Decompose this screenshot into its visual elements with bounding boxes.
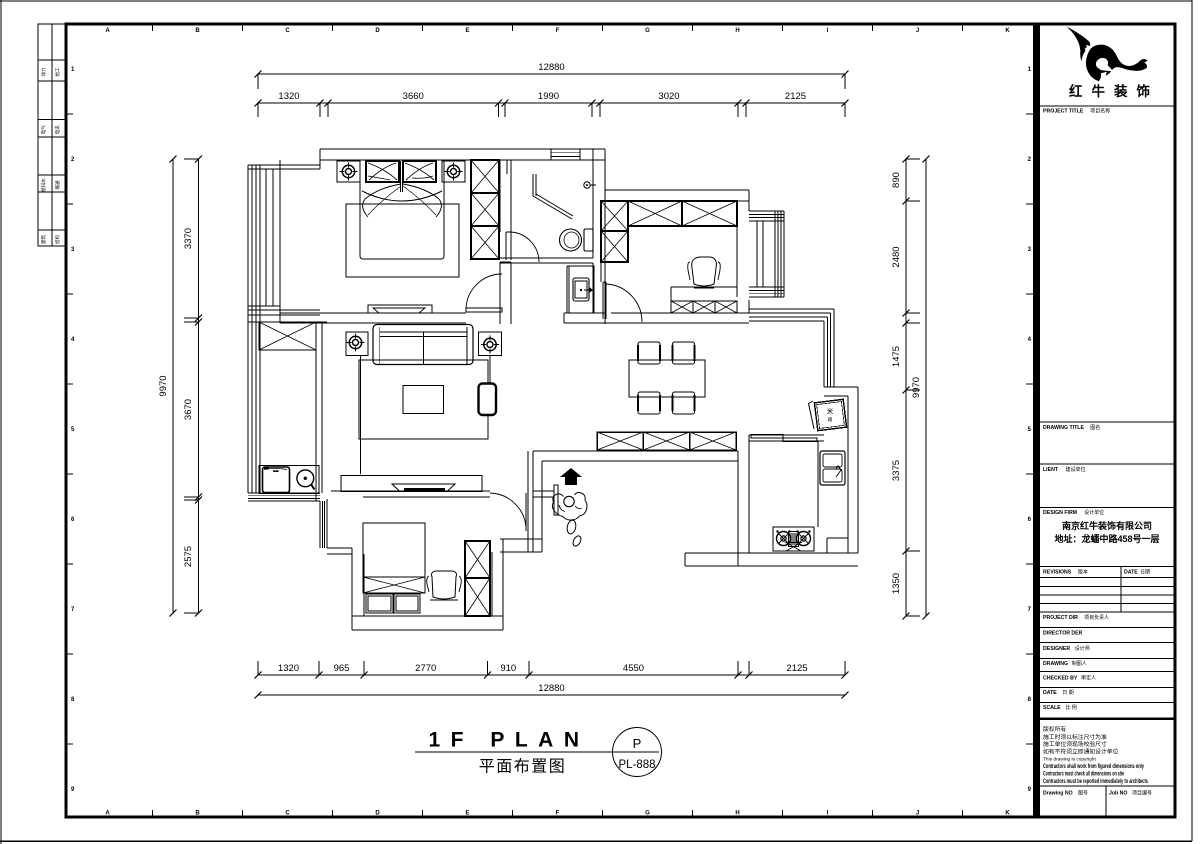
svg-text:4550: 4550: [623, 663, 644, 674]
svg-text:DIRECTOR DER: DIRECTOR DER: [1043, 631, 1083, 637]
svg-text:项目编号: 项目编号: [1132, 790, 1152, 797]
svg-text:日期: 日期: [1140, 570, 1150, 576]
svg-text:3370: 3370: [183, 228, 194, 249]
svg-text:E: E: [465, 28, 469, 34]
svg-text:Contractors must check all dim: Contractors must check all dimensions on…: [1043, 771, 1124, 777]
svg-text:平面布置图: 平面布置图: [479, 758, 567, 776]
svg-text:I: I: [827, 28, 829, 34]
svg-text:E: E: [465, 811, 469, 817]
svg-text:1320: 1320: [278, 91, 299, 102]
svg-text:F: F: [556, 811, 560, 817]
svg-text:暖通: 暖通: [54, 180, 61, 189]
svg-text:This drawing is copyright: This drawing is copyright: [1043, 756, 1096, 762]
svg-text:Job NO: Job NO: [1109, 791, 1127, 797]
svg-text:PROJECT DIR: PROJECT DIR: [1043, 615, 1078, 621]
svg-text:1: 1: [1028, 67, 1032, 73]
svg-text:动力: 动力: [40, 67, 47, 76]
svg-text:9: 9: [71, 787, 75, 793]
svg-text:A: A: [105, 811, 110, 817]
svg-text:8: 8: [71, 697, 75, 703]
svg-text:Contractors shall work from fi: Contractors shall work from figured dime…: [1043, 764, 1144, 770]
svg-text:H: H: [735, 28, 739, 34]
svg-text:6: 6: [71, 517, 75, 523]
svg-text:965: 965: [334, 663, 350, 674]
svg-text:施工时须以标注尺寸为准: 施工时须以标注尺寸为准: [1043, 733, 1107, 741]
svg-text:7: 7: [71, 607, 75, 613]
svg-text:6: 6: [1028, 517, 1032, 523]
svg-text:9970: 9970: [158, 375, 169, 396]
svg-text:米: 米: [827, 407, 834, 416]
svg-text:2: 2: [1028, 157, 1032, 163]
svg-text:3020: 3020: [658, 91, 679, 102]
svg-text:A: A: [105, 28, 110, 34]
svg-text:F: F: [556, 28, 560, 34]
svg-text:DESIGNER: DESIGNER: [1043, 646, 1070, 652]
svg-text:2125: 2125: [785, 91, 806, 102]
svg-text:DRAWING TITLE: DRAWING TITLE: [1043, 425, 1084, 431]
svg-text:审定人: 审定人: [1081, 675, 1096, 682]
svg-text:电气: 电气: [40, 125, 46, 134]
svg-text:版本: 版本: [1078, 569, 1088, 576]
svg-text:1320: 1320: [278, 663, 299, 674]
svg-text:2770: 2770: [415, 663, 436, 674]
svg-text:7: 7: [1028, 607, 1032, 613]
svg-text:结构: 结构: [54, 235, 61, 244]
svg-text:制图人: 制图人: [1072, 660, 1087, 667]
svg-text:B: B: [195, 811, 200, 817]
svg-text:G: G: [645, 811, 650, 817]
svg-text:Drawing NO: Drawing NO: [1043, 791, 1073, 797]
svg-text:1350: 1350: [891, 573, 902, 594]
svg-text:3375: 3375: [891, 460, 902, 481]
svg-text:项目负责人: 项目负责人: [1084, 614, 1109, 621]
svg-text:C: C: [285, 811, 290, 817]
svg-text:4: 4: [71, 337, 75, 343]
svg-text:K: K: [1005, 28, 1010, 34]
svg-text:给排水: 给排水: [40, 178, 47, 192]
svg-text:D: D: [375, 811, 380, 817]
svg-text:J: J: [916, 811, 919, 817]
svg-text:图号: 图号: [1078, 791, 1088, 797]
svg-text:建设单位: 建设单位: [1066, 466, 1086, 473]
svg-text:910: 910: [500, 663, 516, 674]
svg-text:施工单位须现场校验尺寸: 施工单位须现场校验尺寸: [1043, 740, 1107, 748]
svg-text:D: D: [375, 28, 380, 34]
svg-text:版权所有: 版权所有: [1043, 725, 1066, 733]
svg-text:C: C: [285, 28, 290, 34]
svg-text:DATE: DATE: [1043, 690, 1057, 696]
svg-text:南京红牛装饰有限公司: 南京红牛装饰有限公司: [1062, 520, 1152, 531]
svg-text:J: J: [916, 28, 919, 34]
svg-text:电讯: 电讯: [54, 125, 61, 134]
svg-text:12880: 12880: [538, 683, 564, 694]
svg-text:2125: 2125: [786, 663, 807, 674]
svg-text:1990: 1990: [538, 91, 559, 102]
svg-text:B: B: [195, 28, 200, 34]
svg-text:P: P: [633, 736, 642, 751]
svg-text:3: 3: [71, 247, 75, 253]
svg-text:地址：龙蟠中路458号一层: 地址：龙蟠中路458号一层: [1054, 533, 1159, 544]
svg-text:5: 5: [1028, 427, 1032, 433]
svg-text:设计师: 设计师: [1075, 645, 1090, 652]
svg-text:5: 5: [71, 427, 75, 433]
svg-text:H: H: [735, 811, 739, 817]
svg-text:DRAWING: DRAWING: [1043, 661, 1068, 667]
svg-text:项目名称: 项目名称: [1090, 108, 1110, 115]
svg-text:9970: 9970: [911, 377, 922, 398]
svg-text:如有不符须立即通知设计单位: 如有不符须立即通知设计单位: [1043, 748, 1119, 756]
svg-text:DESIGN FIRM: DESIGN FIRM: [1043, 510, 1077, 516]
svg-text:DATE: DATE: [1124, 570, 1138, 576]
svg-text:PL-888: PL-888: [618, 759, 655, 771]
svg-text:图名: 图名: [1090, 424, 1100, 431]
svg-text:PROJECT TITLE: PROJECT TITLE: [1043, 109, 1084, 115]
svg-text:比 例: 比 例: [1066, 704, 1077, 711]
svg-text:设计单位: 设计单位: [1084, 509, 1104, 516]
svg-text:9: 9: [1028, 787, 1032, 793]
svg-text:箱: 箱: [828, 416, 833, 423]
svg-text:2: 2: [71, 157, 75, 163]
svg-text:1F PLAN: 1F PLAN: [428, 729, 589, 752]
svg-text:REVISIONS: REVISIONS: [1043, 570, 1072, 576]
svg-text:I: I: [827, 811, 829, 817]
svg-text:CHECKED BY: CHECKED BY: [1043, 676, 1078, 682]
svg-text:Contractors must be reported i: Contractors must be reported immediately…: [1043, 779, 1148, 785]
svg-text:LIENT: LIENT: [1043, 467, 1059, 473]
svg-text:2480: 2480: [891, 246, 902, 267]
svg-text:G: G: [645, 28, 650, 34]
svg-text:12880: 12880: [538, 62, 564, 73]
svg-text:红牛装饰: 红牛装饰: [1069, 83, 1159, 99]
svg-text:8: 8: [1028, 697, 1032, 703]
svg-text:1: 1: [71, 67, 75, 73]
svg-text:1475: 1475: [891, 346, 902, 367]
svg-text:3: 3: [1028, 247, 1032, 253]
svg-text:890: 890: [891, 172, 902, 188]
svg-text:2575: 2575: [183, 546, 194, 567]
svg-text:建筑: 建筑: [40, 235, 47, 244]
svg-text:给工: 给工: [54, 67, 61, 76]
svg-text:SCALE: SCALE: [1043, 705, 1061, 711]
svg-text:日 期: 日 期: [1062, 690, 1073, 696]
svg-text:4: 4: [1028, 337, 1032, 343]
svg-text:3660: 3660: [403, 91, 424, 102]
svg-text:3670: 3670: [183, 399, 194, 420]
svg-text:K: K: [1005, 811, 1010, 817]
